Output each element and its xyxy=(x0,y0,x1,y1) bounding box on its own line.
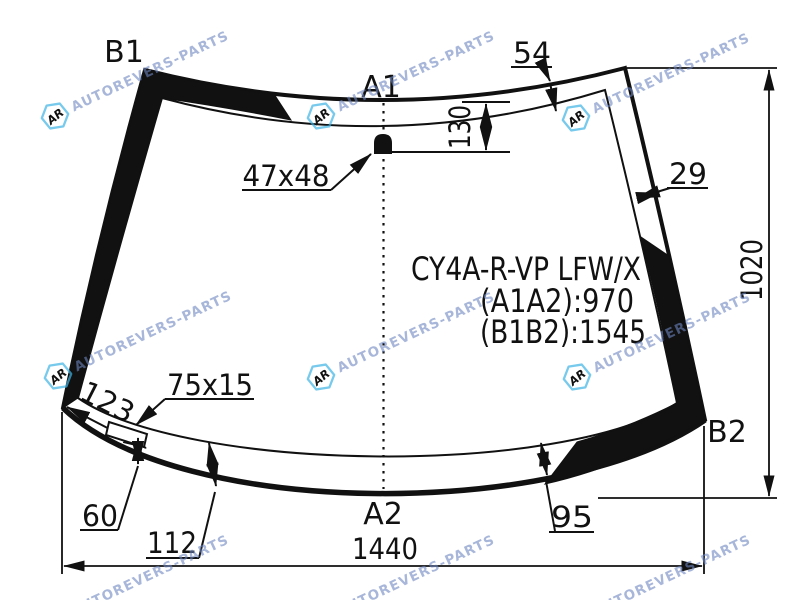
dim-right-band-value: 29 xyxy=(669,157,707,191)
label-b2: B2 xyxy=(707,415,747,450)
dim-sensor-size-value: 47x48 xyxy=(243,159,330,193)
sensor-mount xyxy=(374,134,392,154)
label-a1: A1 xyxy=(361,70,401,105)
windshield-drawing: 130 47x48 54 29 123 xyxy=(0,0,800,600)
dim-top-band-value: 54 xyxy=(513,36,551,70)
dim-bracket-size-value: 75x15 xyxy=(167,368,253,402)
dim-bottom-right-band-value: 95 xyxy=(551,500,593,534)
label-a2: A2 xyxy=(363,497,403,532)
dim-sensor-offset-value: 130 xyxy=(443,105,477,149)
dim-glass-width-value: 1440 xyxy=(352,532,418,566)
dim-glass-height-value: 1020 xyxy=(735,239,769,301)
windshield-diagram: 130 47x48 54 29 123 xyxy=(0,0,800,600)
label-b1: B1 xyxy=(104,35,144,70)
dim-b1b2: (B1B2):1545 xyxy=(480,313,646,351)
dim-bracket-band-value: 60 xyxy=(82,499,118,533)
dim-bottom-band-value: 112 xyxy=(147,526,197,560)
